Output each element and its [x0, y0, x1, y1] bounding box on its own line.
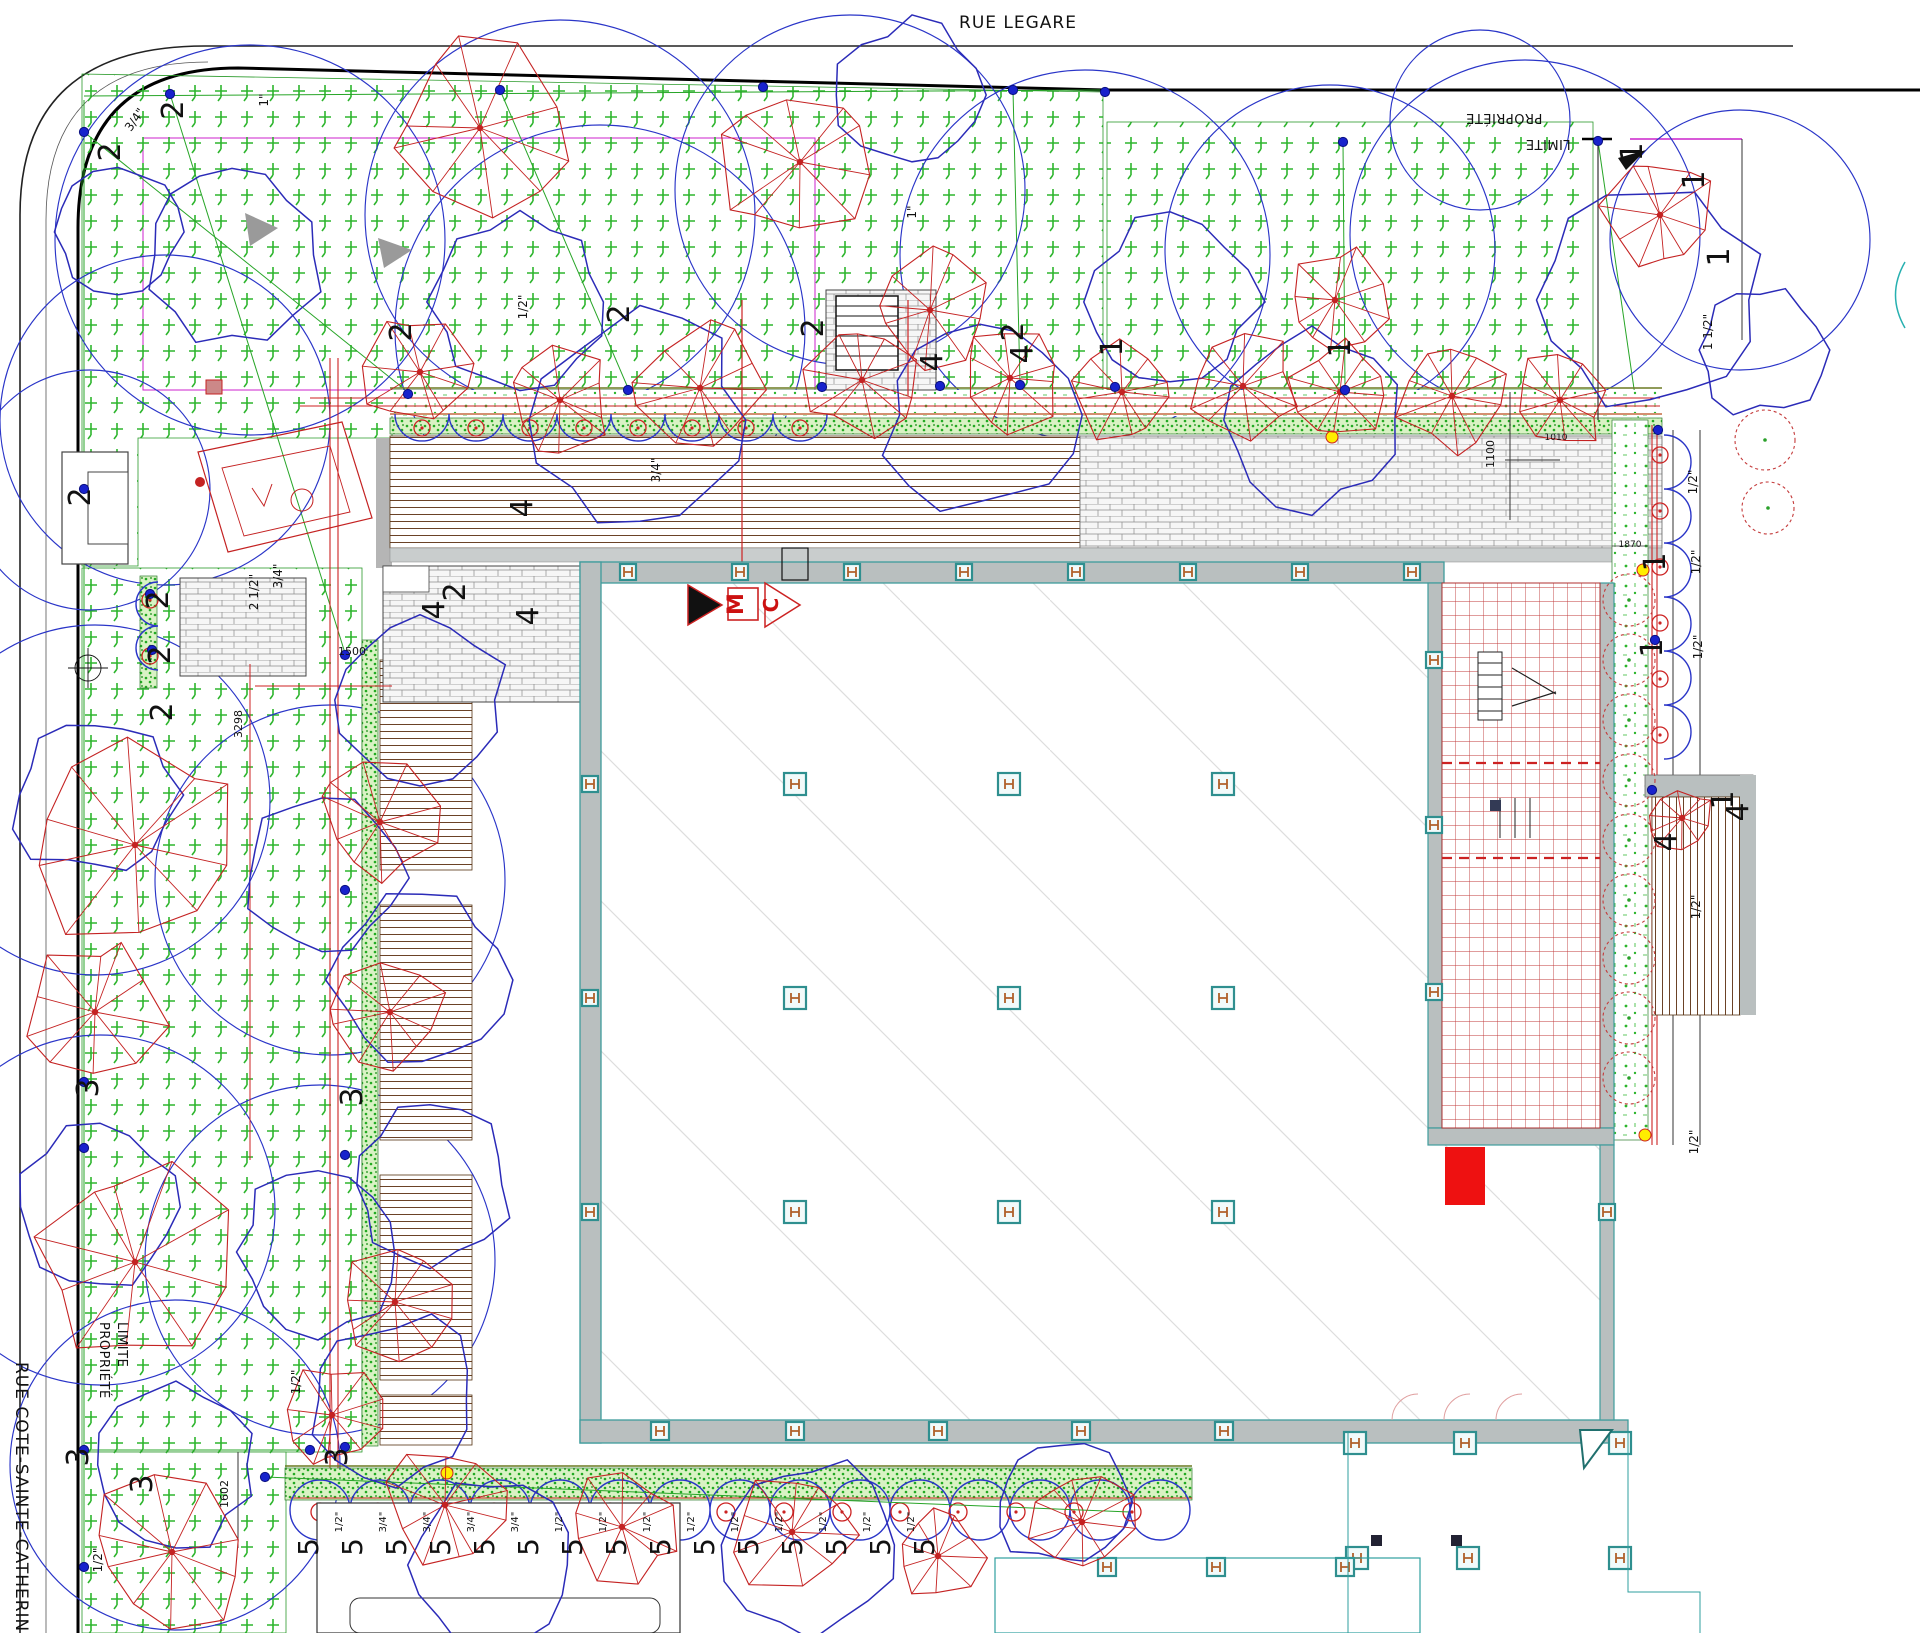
sprinkler-head — [935, 381, 944, 390]
tree-trunk — [927, 307, 933, 313]
dimension-label: 1500 — [338, 645, 366, 658]
tree-trunk — [92, 1009, 98, 1015]
shrub — [1627, 778, 1631, 782]
zone-label: 1 — [1677, 170, 1712, 189]
zone-label: 3 — [125, 1474, 160, 1493]
pipe-size-label: 1/2" — [642, 1512, 653, 1533]
street-left-label: RUE COTE-SAINTE-CATHERINE — [11, 1362, 31, 1633]
sprinkler-head — [758, 82, 767, 91]
zone-label: 3 — [61, 1447, 96, 1466]
sprinkler-circle-row — [724, 1510, 727, 1513]
pipe-size-label: 1/2" — [818, 1512, 829, 1533]
sprinkler-circle-row — [636, 426, 639, 429]
property-limit-top-line1: LIMITE — [1525, 136, 1570, 151]
shrub — [1627, 838, 1631, 842]
dimension-label: 1/2" — [1689, 895, 1703, 920]
entrance-notch — [383, 566, 429, 592]
sprinkler-head — [403, 389, 412, 398]
tree-trunk — [329, 1412, 335, 1418]
courtyard-paving — [1442, 583, 1600, 1128]
zone-label: 3 — [320, 1447, 355, 1466]
bench-block — [1451, 1535, 1462, 1546]
tree-trunk — [132, 842, 138, 848]
sprinkler-head — [495, 85, 504, 94]
dimension-label: 1100 — [1484, 440, 1497, 468]
zone-label: 5 — [600, 1538, 633, 1556]
dimension-label: 1/2" — [516, 295, 530, 320]
sprinkler-head — [1110, 382, 1119, 391]
zone-label: 1 — [1095, 337, 1130, 356]
zone-label: 2 — [438, 582, 473, 601]
red-equipment-box — [1445, 1147, 1485, 1205]
zone-label: 2 — [602, 304, 637, 323]
zone-label: 4 — [417, 600, 452, 619]
property-limit-left-line2: PROPRIÉTÉ — [96, 1322, 112, 1399]
sprinkler-head-red — [195, 477, 205, 487]
pipe-size-label: 3/4" — [378, 1512, 389, 1533]
dimension-label: 1/2" — [1689, 550, 1703, 575]
tree-trunk — [1240, 383, 1246, 389]
sprinkler-head — [817, 382, 826, 391]
sprinkler-head — [260, 1472, 269, 1481]
dimension-label: 1/2" — [1691, 635, 1705, 660]
tree-trunk — [1079, 1519, 1085, 1525]
stairs — [836, 296, 898, 370]
zone-label: 2 — [796, 318, 831, 337]
pipe-size-label: 3/4" — [466, 1512, 477, 1533]
zone-label: 5 — [776, 1538, 809, 1556]
zone-label: 5 — [512, 1538, 545, 1556]
street-top-label: RUE LEGARE — [959, 13, 1077, 33]
valve-highlight — [1639, 1129, 1651, 1141]
zone-label: 2 — [93, 142, 128, 161]
sprinkler-head — [1015, 380, 1024, 389]
sprinkler-head — [1593, 136, 1602, 145]
sprinkler-head — [79, 127, 88, 136]
tree-trunk — [1332, 297, 1338, 303]
zone-label: 5 — [468, 1538, 501, 1556]
door-triangle — [1580, 1430, 1612, 1468]
sprinkler-head — [1653, 425, 1662, 434]
tree-trunk — [859, 377, 865, 383]
zone-label: 1 — [1702, 247, 1737, 266]
building-wall — [1600, 583, 1614, 1128]
shrub — [1766, 506, 1770, 510]
zone-label: 5 — [908, 1538, 941, 1556]
sprinkler-head — [79, 1143, 88, 1152]
valve-highlight — [1326, 431, 1338, 443]
zone-label: 2 — [156, 100, 191, 119]
tree-trunk — [132, 1259, 138, 1265]
tree-trunk — [442, 1502, 448, 1508]
sprinkler-head — [305, 1445, 314, 1454]
bench-block — [1371, 1535, 1382, 1546]
site-plan-canvas: MC51/2"53/4"53/4"53/4"53/4"51/2"51/2"51/… — [0, 0, 1920, 1633]
zone-label: 5 — [820, 1538, 853, 1556]
dimension-label: 1/2" — [1686, 470, 1700, 495]
sprinkler-circle-col — [1658, 621, 1661, 624]
zone-label: 3 — [71, 1078, 106, 1097]
zone-label: 4 — [1649, 832, 1684, 851]
zone-label: 5 — [380, 1538, 413, 1556]
sprinkler-circle-row — [798, 426, 801, 429]
sprinkler-circle-row — [690, 426, 693, 429]
tree-trunk — [1449, 393, 1455, 399]
pipe-size-label: 1/2" — [774, 1512, 785, 1533]
shrub — [1627, 718, 1631, 722]
courtyard-bench — [1490, 800, 1501, 811]
pipe-size-label: 1/2" — [598, 1512, 609, 1533]
sprinkler-circle-col — [1658, 453, 1661, 456]
zone-label: 5 — [732, 1538, 765, 1556]
concrete-edge — [390, 548, 1662, 562]
deck-area — [380, 1395, 472, 1445]
sprinkler-circle-row — [1130, 1510, 1133, 1513]
zone-label: 1 — [1638, 552, 1673, 571]
zone-label: 5 — [336, 1538, 369, 1556]
dimension-label: 1602 — [218, 1480, 231, 1508]
pipe-size-label: 1/2" — [686, 1512, 697, 1533]
zone-label: 2 — [384, 322, 419, 341]
zone-label: 2 — [143, 645, 178, 664]
sprinkler-head — [340, 885, 349, 894]
zone-label: 1 — [1323, 338, 1358, 357]
pipe-size-label: 1/2" — [554, 1512, 565, 1533]
dimension-label: 1" — [905, 205, 919, 218]
dimension-label: 1" — [257, 93, 271, 106]
tree-trunk — [557, 397, 563, 403]
zone-label: 4 — [1005, 344, 1040, 363]
zone-label: 5 — [644, 1538, 677, 1556]
sprinkler-circle-row — [1014, 1510, 1017, 1513]
property-limit-left-line1: LIMITE — [114, 1322, 129, 1367]
dimension-label: 2 1/2" — [247, 574, 261, 610]
sprinkler-circle-row — [956, 1510, 959, 1513]
curb-curve — [1896, 262, 1906, 328]
building-wall — [580, 562, 1444, 583]
zone-label: 1 — [1615, 142, 1650, 161]
tree-trunk — [697, 385, 703, 391]
zone-label: 5 — [688, 1538, 721, 1556]
shrub — [1627, 598, 1631, 602]
shrub — [1627, 1016, 1631, 1020]
shrub — [1627, 1076, 1631, 1080]
building-wall — [1600, 1145, 1614, 1420]
paver-pad — [180, 578, 306, 676]
pipe-size-label: 3/4" — [422, 1512, 433, 1533]
dimension-label: 1 1/2" — [1701, 314, 1715, 350]
play-structure-detail — [252, 484, 272, 506]
tree-trunk — [392, 1299, 398, 1305]
marker-m-label: M — [724, 593, 749, 615]
tree-trunk — [1557, 397, 1563, 403]
shrub — [1627, 898, 1631, 902]
paver-walkway — [1080, 436, 1662, 548]
zone-label: 4 — [505, 498, 540, 517]
sprinkler-head — [1100, 87, 1109, 96]
tree-trunk — [619, 1524, 625, 1530]
zone-label: 4 — [511, 606, 546, 625]
pipe-size-label: 3/4" — [510, 1512, 521, 1533]
dimension-label: 3/4" — [271, 564, 285, 589]
sprinkler-circle-col — [1658, 509, 1661, 512]
dimension-label: 3298 — [232, 710, 245, 738]
sprinkler-head — [340, 1150, 349, 1159]
lawn-area — [82, 568, 362, 1452]
pipe-size-label: 1/2" — [730, 1512, 741, 1533]
sprinkler-head — [165, 89, 174, 98]
zone-label: 5 — [292, 1538, 325, 1556]
dimension-label: 1/2" — [1687, 1130, 1701, 1155]
tree-trunk — [1007, 375, 1013, 381]
tree-trunk — [1657, 212, 1663, 218]
play-structure-outline — [222, 446, 350, 536]
shrub — [1763, 438, 1767, 442]
site-furniture — [206, 380, 222, 394]
deck-area — [390, 436, 1080, 548]
dimension-label: 3/4" — [649, 458, 663, 483]
tree-trunk — [1119, 389, 1125, 395]
sprinkler-circle-row — [474, 426, 477, 429]
sprinkler-head — [1647, 785, 1656, 794]
zone-label: 2 — [63, 487, 98, 506]
sprinkler-circle-row — [420, 426, 423, 429]
marker-c-label: C — [759, 598, 783, 613]
tree-trunk — [377, 819, 383, 825]
sprinkler-head — [623, 385, 632, 394]
dimension-label: 1/2" — [289, 1370, 303, 1395]
dimension-label: 1010 — [1545, 433, 1568, 443]
zone-label: 5 — [424, 1538, 457, 1556]
valve-highlight — [441, 1467, 453, 1479]
courtyard-ladder — [1478, 652, 1502, 720]
existing-structure — [88, 472, 128, 544]
zone-label: 5 — [556, 1538, 589, 1556]
tree-trunk — [1679, 815, 1685, 821]
tree-trunk — [789, 1529, 795, 1535]
shrub — [1627, 956, 1631, 960]
sprinkler-circle-row — [582, 426, 585, 429]
sprinkler-circle-col — [1658, 677, 1661, 680]
tree-trunk — [169, 1549, 175, 1555]
pipe-size-label: 1/2" — [862, 1512, 873, 1533]
zone-label: 1 — [1706, 790, 1741, 809]
zone-label: 2 — [996, 322, 1031, 341]
zone-label: 1 — [1635, 638, 1670, 657]
tree-trunk — [387, 1009, 393, 1015]
zone-label: 2 — [145, 702, 180, 721]
sprinkler-head — [79, 1562, 88, 1571]
sprinkler-head — [1340, 385, 1349, 394]
building-wall — [1428, 1128, 1614, 1145]
zone-label: 3 — [335, 1087, 370, 1106]
zone-label: 4 — [915, 352, 950, 371]
generated-plan-geometry: MC51/2"53/4"53/4"53/4"53/4"51/2"51/2"51/… — [0, 15, 1920, 1633]
tree-trunk — [797, 159, 803, 165]
tree-canopy — [1699, 289, 1830, 415]
planting-strip — [390, 390, 1662, 416]
sprinkler-head — [1338, 137, 1347, 146]
pipe-size-label: 1/2" — [334, 1512, 345, 1533]
shrub — [1627, 658, 1631, 662]
dimension-label: 1/2" — [91, 1548, 105, 1573]
sprinkler-circle-col — [1658, 733, 1661, 736]
zone-label: 2 — [141, 590, 176, 609]
landscape-irrigation-plan: MC51/2"53/4"53/4"53/4"53/4"51/2"51/2"51/… — [0, 0, 1920, 1633]
tree-trunk — [417, 369, 423, 375]
future-zone-outline — [1348, 1432, 1700, 1633]
sprinkler-circle-row — [898, 1510, 901, 1513]
zone-label: 5 — [864, 1538, 897, 1556]
irrigation-lateral — [1598, 141, 1640, 430]
property-limit-top-line2: PROPRIÉTÉ — [1466, 110, 1543, 126]
pipe-size-label: 1/2" — [906, 1512, 917, 1533]
tree-trunk — [477, 125, 483, 131]
dimension-label: 1870 — [1619, 540, 1642, 550]
sprinkler-head — [1008, 85, 1017, 94]
